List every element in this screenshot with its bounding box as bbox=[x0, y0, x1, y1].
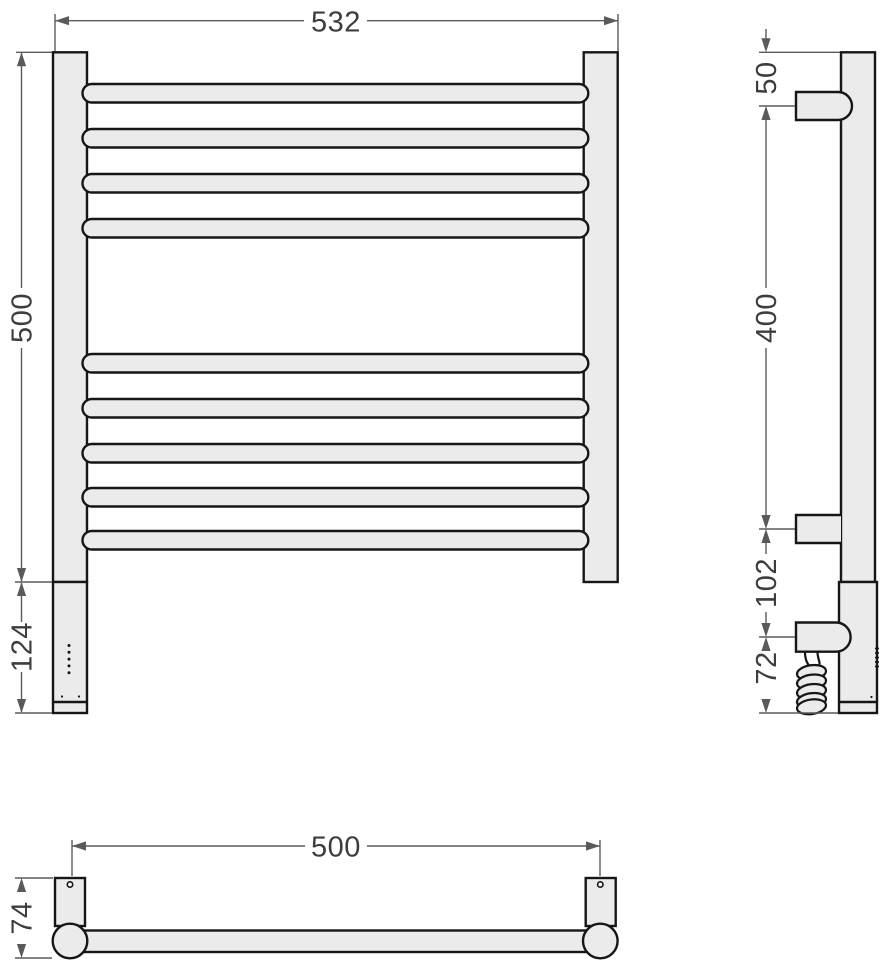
dimension-front-heater-section: 124 bbox=[7, 582, 53, 713]
led-dot bbox=[68, 658, 71, 661]
dimension-value-heater-section: 124 bbox=[7, 622, 39, 672]
arrowhead-up bbox=[17, 52, 26, 66]
towel-bar bbox=[83, 174, 589, 193]
dimension-bottom-mount-spacing: 500 bbox=[72, 832, 600, 877]
towel-bar bbox=[83, 84, 589, 103]
arrowhead-right bbox=[604, 16, 618, 25]
housing-screw-side bbox=[870, 696, 872, 698]
towel-bar bbox=[83, 354, 589, 373]
dimension-front-width: 532 bbox=[55, 7, 618, 52]
arrowhead-right bbox=[586, 841, 600, 850]
arrowhead-left bbox=[55, 16, 69, 25]
towel-bar bbox=[83, 531, 589, 550]
dimension-value-top-offset: 50 bbox=[751, 61, 783, 94]
side-view: 50 400 102 72 bbox=[751, 29, 879, 716]
dimension-front-height: 500 bbox=[7, 52, 53, 582]
led-dot bbox=[68, 671, 71, 674]
dimension-value-cable-drop: 72 bbox=[751, 651, 783, 684]
wall-bracket-top bbox=[796, 92, 852, 120]
arrowhead-up bbox=[17, 878, 26, 892]
arrowhead-up bbox=[761, 637, 770, 651]
arrowhead-down bbox=[17, 568, 26, 582]
housing-screw bbox=[61, 695, 63, 697]
towel-rail-technical-drawing: 532 500 124 bbox=[0, 0, 887, 970]
side-post bbox=[841, 52, 875, 582]
heater-housing-body bbox=[53, 582, 87, 713]
dimension-side-heater-bracket-offset: 102 bbox=[751, 529, 795, 637]
dimension-value-bracket-spacing: 400 bbox=[751, 293, 783, 343]
screw-hole-right bbox=[598, 882, 603, 887]
towel-bar bbox=[83, 488, 589, 507]
wall-bracket-middle bbox=[796, 515, 841, 543]
dimension-value-front-height: 500 bbox=[7, 293, 39, 343]
led-dot bbox=[68, 644, 71, 647]
heater-bracket bbox=[796, 623, 851, 652]
arrowhead-up bbox=[761, 529, 770, 543]
led-dot bbox=[68, 651, 71, 654]
heater-housing-front bbox=[53, 582, 87, 713]
dimension-value-heater-bracket-offset: 102 bbox=[751, 558, 783, 608]
power-cable bbox=[796, 652, 827, 716]
dimension-side-bracket-spacing: 400 bbox=[751, 106, 795, 529]
dimension-value-mount-spacing: 500 bbox=[311, 832, 361, 864]
screw-hole-left bbox=[67, 882, 72, 887]
dimension-value-depth: 74 bbox=[7, 901, 39, 934]
arrowhead-down bbox=[761, 515, 770, 529]
dimension-value-front-width: 532 bbox=[311, 7, 361, 39]
arrowhead-up bbox=[17, 582, 26, 596]
arrowhead-down bbox=[17, 699, 26, 713]
arrowhead-down bbox=[17, 944, 26, 958]
coiled-cord bbox=[796, 663, 827, 716]
towel-bar bbox=[83, 444, 589, 463]
housing-screw bbox=[78, 695, 80, 697]
dimension-bottom-depth: 74 bbox=[7, 878, 54, 958]
front-view: 532 500 124 bbox=[7, 7, 619, 714]
dimension-side-top-offset: 50 bbox=[751, 29, 840, 95]
towel-bar bbox=[83, 399, 589, 418]
arrowhead-down bbox=[761, 38, 770, 52]
bottom-view: 500 74 bbox=[7, 832, 618, 959]
left-post bbox=[53, 52, 87, 582]
drawing-canvas: 532 500 124 bbox=[0, 0, 887, 970]
arrowhead-down bbox=[761, 623, 770, 637]
led-dot bbox=[68, 664, 71, 667]
cable-stub-line bbox=[818, 652, 820, 665]
towel-bars bbox=[83, 84, 589, 550]
bottom-bar bbox=[75, 931, 595, 953]
arrowhead-left bbox=[72, 841, 86, 850]
post-section-left bbox=[53, 924, 88, 959]
right-post bbox=[584, 52, 618, 582]
arrowhead-up bbox=[761, 106, 770, 120]
towel-bar bbox=[83, 129, 589, 148]
towel-bar bbox=[83, 219, 589, 238]
post-section-right bbox=[583, 924, 618, 959]
arrowhead-down bbox=[761, 699, 770, 713]
